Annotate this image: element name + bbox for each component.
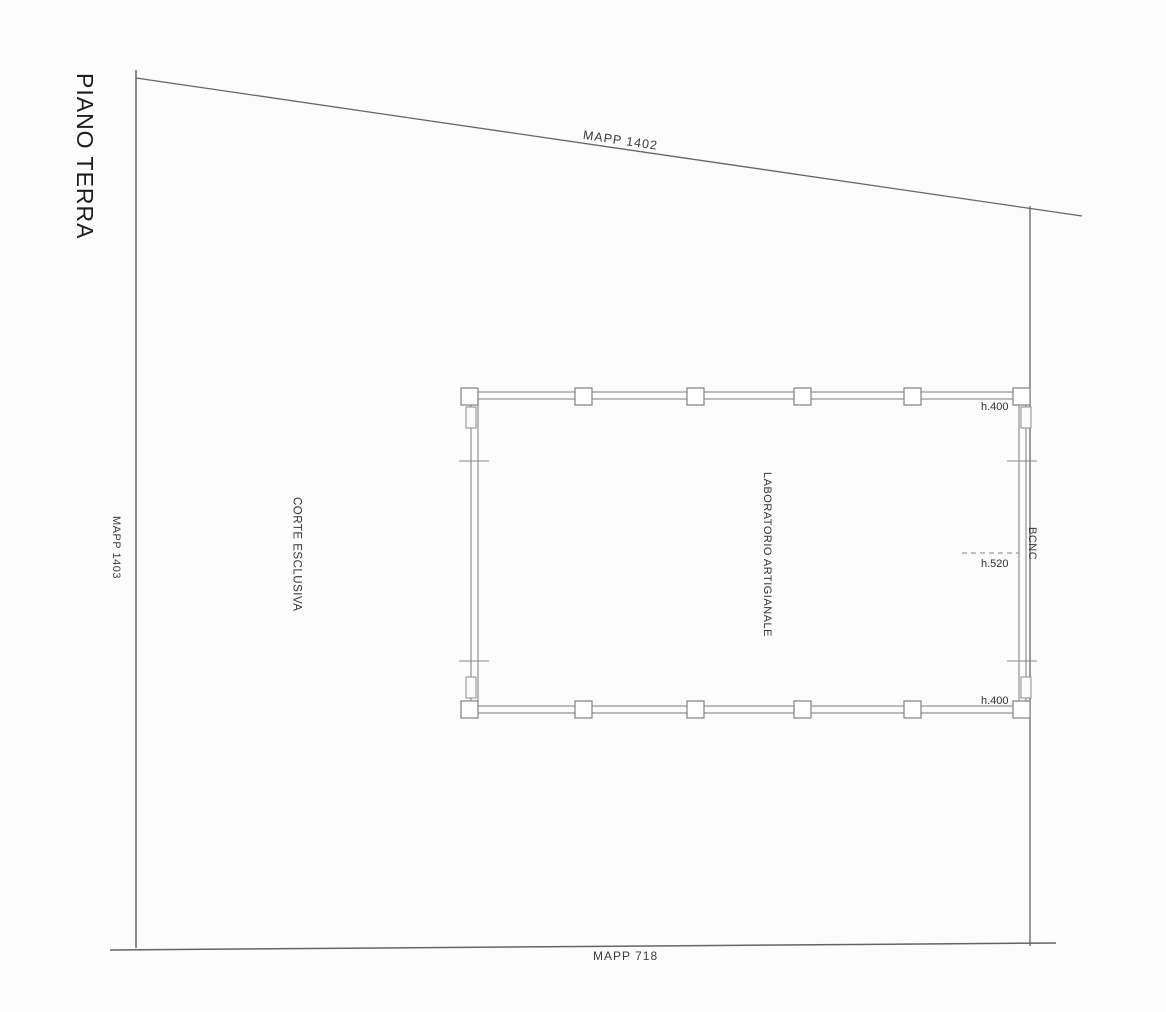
window-ticks [459, 461, 1037, 661]
parcel-label-mapp-1403: MAPP 1403 [110, 516, 121, 579]
pillar [794, 701, 811, 718]
jamb-right-top [1021, 407, 1031, 428]
pillar [575, 388, 592, 405]
pillar [904, 388, 921, 405]
jamb-right-bottom [1021, 677, 1031, 698]
parcel-boundary [110, 70, 1082, 950]
plan-linework [0, 0, 1166, 1012]
boundary-top-line [136, 78, 1082, 216]
pillar [687, 388, 704, 405]
pillar [687, 701, 704, 718]
pillar [1013, 701, 1030, 718]
pillar [904, 701, 921, 718]
jamb-left-bottom [466, 677, 476, 698]
pillar [461, 388, 478, 405]
window-jambs [466, 407, 1031, 698]
pillar [1013, 388, 1030, 405]
floor-plan: PIANO TERRA MAPP 1402 MAPP 1403 MAPP 718… [0, 0, 1166, 1012]
plan-title: PIANO TERRA [73, 73, 96, 240]
parcel-label-mapp-718: MAPP 718 [593, 950, 658, 962]
pillar [461, 701, 478, 718]
pillars-bottom [461, 701, 1030, 718]
boundary-bottom-line [110, 943, 1056, 950]
dimension-height-top-right: h.400 [981, 402, 1009, 413]
area-label-courtyard: CORTE ESCLUSIVA [290, 497, 302, 611]
dimension-height-mid-right: h.520 [981, 559, 1009, 570]
pillars-top [461, 388, 1030, 405]
area-label-workshop: LABORATORIO ARTIGIANALE [761, 472, 772, 637]
building-walls [470, 392, 1026, 713]
jamb-left-top [466, 407, 476, 428]
pillar [575, 701, 592, 718]
area-label-bcnc: BCNC [1026, 527, 1037, 560]
dimension-height-bottom-right: h.400 [981, 696, 1009, 707]
pillar [794, 388, 811, 405]
